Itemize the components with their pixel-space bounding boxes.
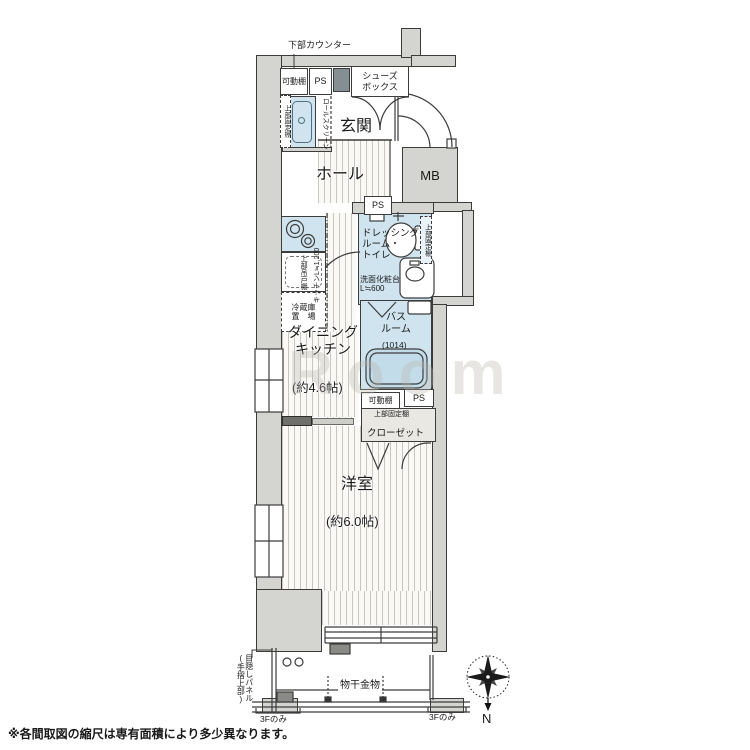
entry-dark-cabinet (333, 68, 350, 92)
ps-hall-box: PS (364, 196, 392, 215)
roll-screen-label: ロールスクリーン (321, 98, 329, 150)
third-floor-only-left-label: 3Fのみ (260, 714, 287, 724)
dk-size-label: (約4.6帖) (292, 381, 343, 396)
floor-plan: MB (0, 0, 750, 750)
north-label: N (482, 711, 491, 726)
scale-note: ※各間取図の縮尺は専有面積により多少異なります。 (8, 727, 294, 741)
compass-icon (466, 655, 510, 711)
sliding-window-icon (325, 627, 437, 643)
north-arrow-icon (485, 703, 492, 711)
ps-entry-box: PS (309, 68, 332, 95)
western-room-label: 洋室 (341, 476, 373, 495)
movable-shelf-entry-label: 可動棚 (282, 77, 306, 86)
western-room-size-label: (約6.0帖) (326, 514, 379, 529)
third-floor-only-right-label: 3Fのみ (429, 712, 456, 722)
upper-fixed-shelf-entry-strip: 上部固定棚 (280, 95, 291, 148)
balcony-block-right (430, 698, 464, 713)
wall-right-lower (432, 304, 447, 652)
dk-label: ダイニング キッチン (286, 324, 360, 357)
laundry-pole-label: 物干金物 (338, 680, 382, 692)
bath-room-label: バス ルーム (376, 312, 416, 336)
kitchen-counter (281, 216, 326, 252)
upper-fixed-shelf-closet-label: 上部固定棚 (374, 411, 409, 419)
wall-corridor-stub (401, 28, 421, 58)
shoes-door-arc (380, 97, 409, 130)
closet-label: クローゼット (367, 428, 424, 439)
balcony-block-left (262, 698, 298, 713)
pipe-icon (283, 658, 291, 666)
kitchen-length-label: キッチンL≒1,200 (314, 248, 322, 303)
movable-shelf-bath-label: 可動棚 (369, 396, 393, 405)
upper-hanging-cupboard-label: 上部吊戸棚 (300, 255, 307, 290)
genkan-label: 玄関 (340, 118, 372, 137)
wall-top-right (411, 55, 456, 67)
mb-label: MB (420, 168, 440, 183)
wall-left (256, 55, 282, 591)
entrance-door-arc (398, 93, 452, 147)
drain-icon (298, 117, 305, 124)
fridge-space-label: 冷蔵庫 置 場 (292, 303, 316, 322)
hall-label: ホール (316, 166, 364, 185)
bath-size-label: (1014) (382, 340, 407, 350)
shoes-box: シューズ ボックス (351, 66, 409, 97)
closet-box: 上部固定棚 クローゼット (361, 408, 436, 442)
upper-fixed-shelf-entry-label: 上部固定棚 (282, 105, 289, 138)
counter-below-label: 下部カウンター (288, 40, 351, 51)
mb-box: MB (402, 147, 458, 204)
pipe-icon (295, 658, 303, 666)
movable-shelf-entry-box: 可動棚 (280, 68, 308, 95)
vanity-label: 洗面化粧台 L≒600 (360, 275, 400, 294)
western-room-floor-lower (322, 591, 435, 625)
ps-bath-box: PS (404, 389, 434, 407)
shoes-box-label: シューズ ボックス (362, 71, 398, 92)
partition-dk-east (312, 418, 354, 425)
dressing-room-label: ドレッシング ルーム・ トイレ (362, 228, 419, 262)
entrance-door-arc-small (398, 116, 430, 148)
upper-fixed-shelf-dressing-label: 上部固定棚 (423, 224, 430, 257)
ps-bath-label: PS (413, 393, 425, 404)
partition-dk-west (282, 416, 312, 426)
wall-bottom-left-block (256, 589, 322, 652)
ps-entry-label: PS (314, 76, 326, 87)
hatch-box-icon (330, 644, 350, 654)
movable-shelf-bath-box: 可動棚 (361, 392, 400, 409)
waterproof-pan-area (288, 96, 316, 148)
privacy-panel-label: 目隠しパネル (手摺上部) (236, 654, 253, 722)
upper-fixed-shelf-dressing-strip: 上部固定棚 (420, 216, 432, 264)
western-room-floor (282, 426, 432, 591)
wall-right-upper (462, 210, 474, 306)
ps-hall-label: PS (372, 200, 384, 211)
